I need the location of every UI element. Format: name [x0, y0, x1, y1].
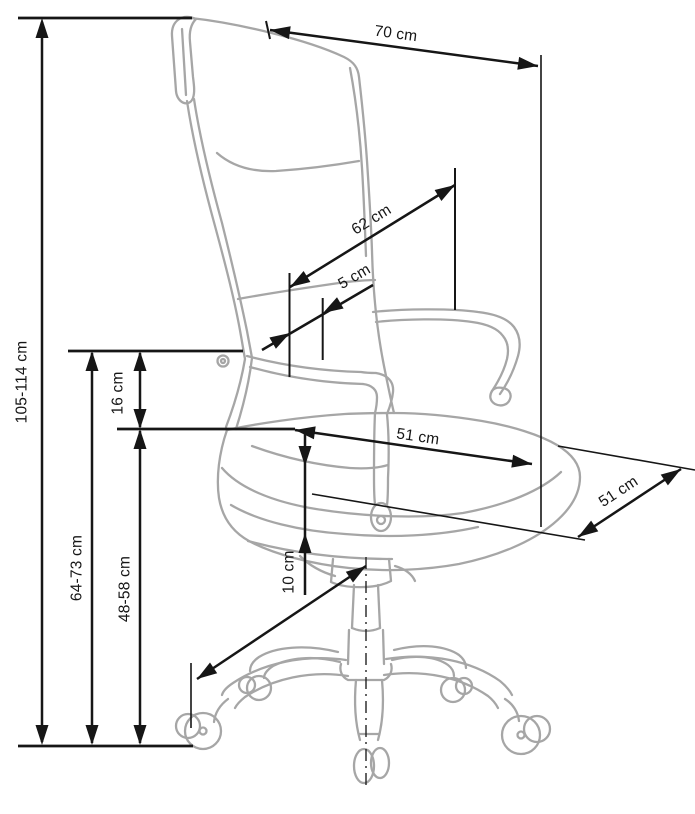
- chair-illustration: [172, 17, 580, 788]
- dimension-label-seat-height: 48-58 cm: [116, 556, 133, 622]
- dimension-label-backrest-width: 70 cm: [373, 23, 418, 46]
- dimension-label-floor-to-armrest: 64-73 cm: [68, 535, 85, 601]
- chair-dimension-diagram: 105-114 cm 64-73 cm 16 cm 48-58 cm: [0, 0, 695, 814]
- chair-armrest-far: [373, 309, 520, 405]
- dimension-label-armrest-above-seat: 16 cm: [109, 371, 126, 414]
- dimension-backrest-gap: 5 cm: [262, 261, 374, 360]
- dimension-floor-to-armrest: 64-73 cm: [68, 351, 98, 745]
- dimension-total-height: 105-114 cm: [13, 18, 48, 745]
- chair-headrest: [172, 17, 196, 103]
- dimension-armrest-above-seat: 16 cm: [109, 351, 146, 429]
- dimension-label-height-adjustment: 10 cm: [280, 550, 297, 593]
- armrest-pivot-bolt: [218, 356, 229, 367]
- chair-casters: [176, 676, 550, 783]
- dimension-base-diagonal: [191, 566, 366, 728]
- dimension-seat-depth: 51 cm: [295, 425, 532, 467]
- dimension-label-total-height: 105-114 cm: [13, 341, 30, 424]
- dimension-annotations: 105-114 cm 64-73 cm 16 cm 48-58 cm: [13, 18, 695, 746]
- dimension-seat-height: 48-58 cm: [116, 429, 146, 745]
- dimension-label-seat-width: 51 cm: [596, 473, 641, 511]
- dimension-height-adjustment: 10 cm: [280, 430, 311, 595]
